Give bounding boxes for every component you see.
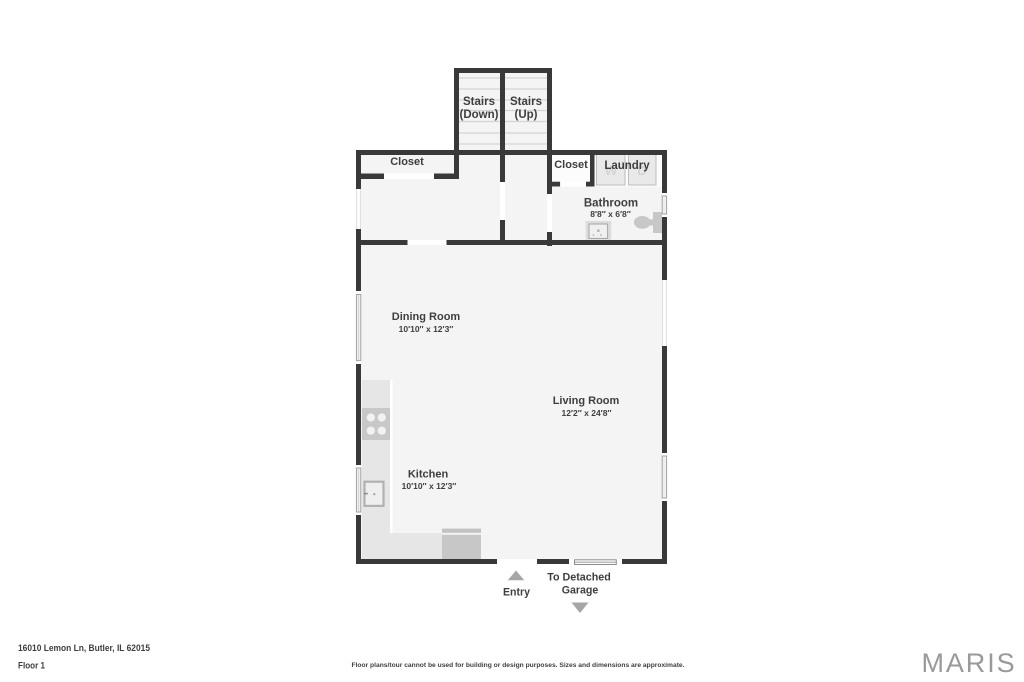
svg-text:10′10″ x 12′3″: 10′10″ x 12′3″ [399, 324, 454, 334]
svg-text:MARIS: MARIS [922, 648, 1017, 678]
svg-text:Bathroom: Bathroom [584, 198, 638, 210]
svg-text:12′2″ x 24′8″: 12′2″ x 24′8″ [561, 408, 611, 418]
svg-text:(Up): (Up) [515, 109, 538, 121]
svg-text:Floor 1: Floor 1 [18, 661, 45, 671]
svg-text:Laundry: Laundry [604, 160, 650, 172]
svg-text:16010 Lemon Ln, Butler, IL 620: 16010 Lemon Ln, Butler, IL 62015 [18, 643, 150, 653]
svg-text:Closet: Closet [390, 156, 424, 168]
svg-text:Living Room: Living Room [553, 395, 620, 407]
svg-text:To Detached: To Detached [547, 572, 611, 584]
svg-text:Stairs: Stairs [463, 96, 495, 108]
svg-text:Garage: Garage [562, 585, 599, 597]
svg-text:Stairs: Stairs [510, 96, 542, 108]
svg-text:Closet: Closet [554, 159, 588, 171]
svg-text:10′10″ x 12′3″: 10′10″ x 12′3″ [402, 481, 457, 491]
svg-text:Dining Room: Dining Room [392, 311, 461, 323]
svg-text:Entry: Entry [503, 587, 531, 599]
svg-text:Kitchen: Kitchen [408, 469, 449, 481]
svg-text:Floor plans/tour cannot be use: Floor plans/tour cannot be used for buil… [352, 662, 685, 669]
svg-text:(Down): (Down) [460, 109, 499, 121]
svg-text:8′8″ x 6′8″: 8′8″ x 6′8″ [590, 209, 631, 219]
